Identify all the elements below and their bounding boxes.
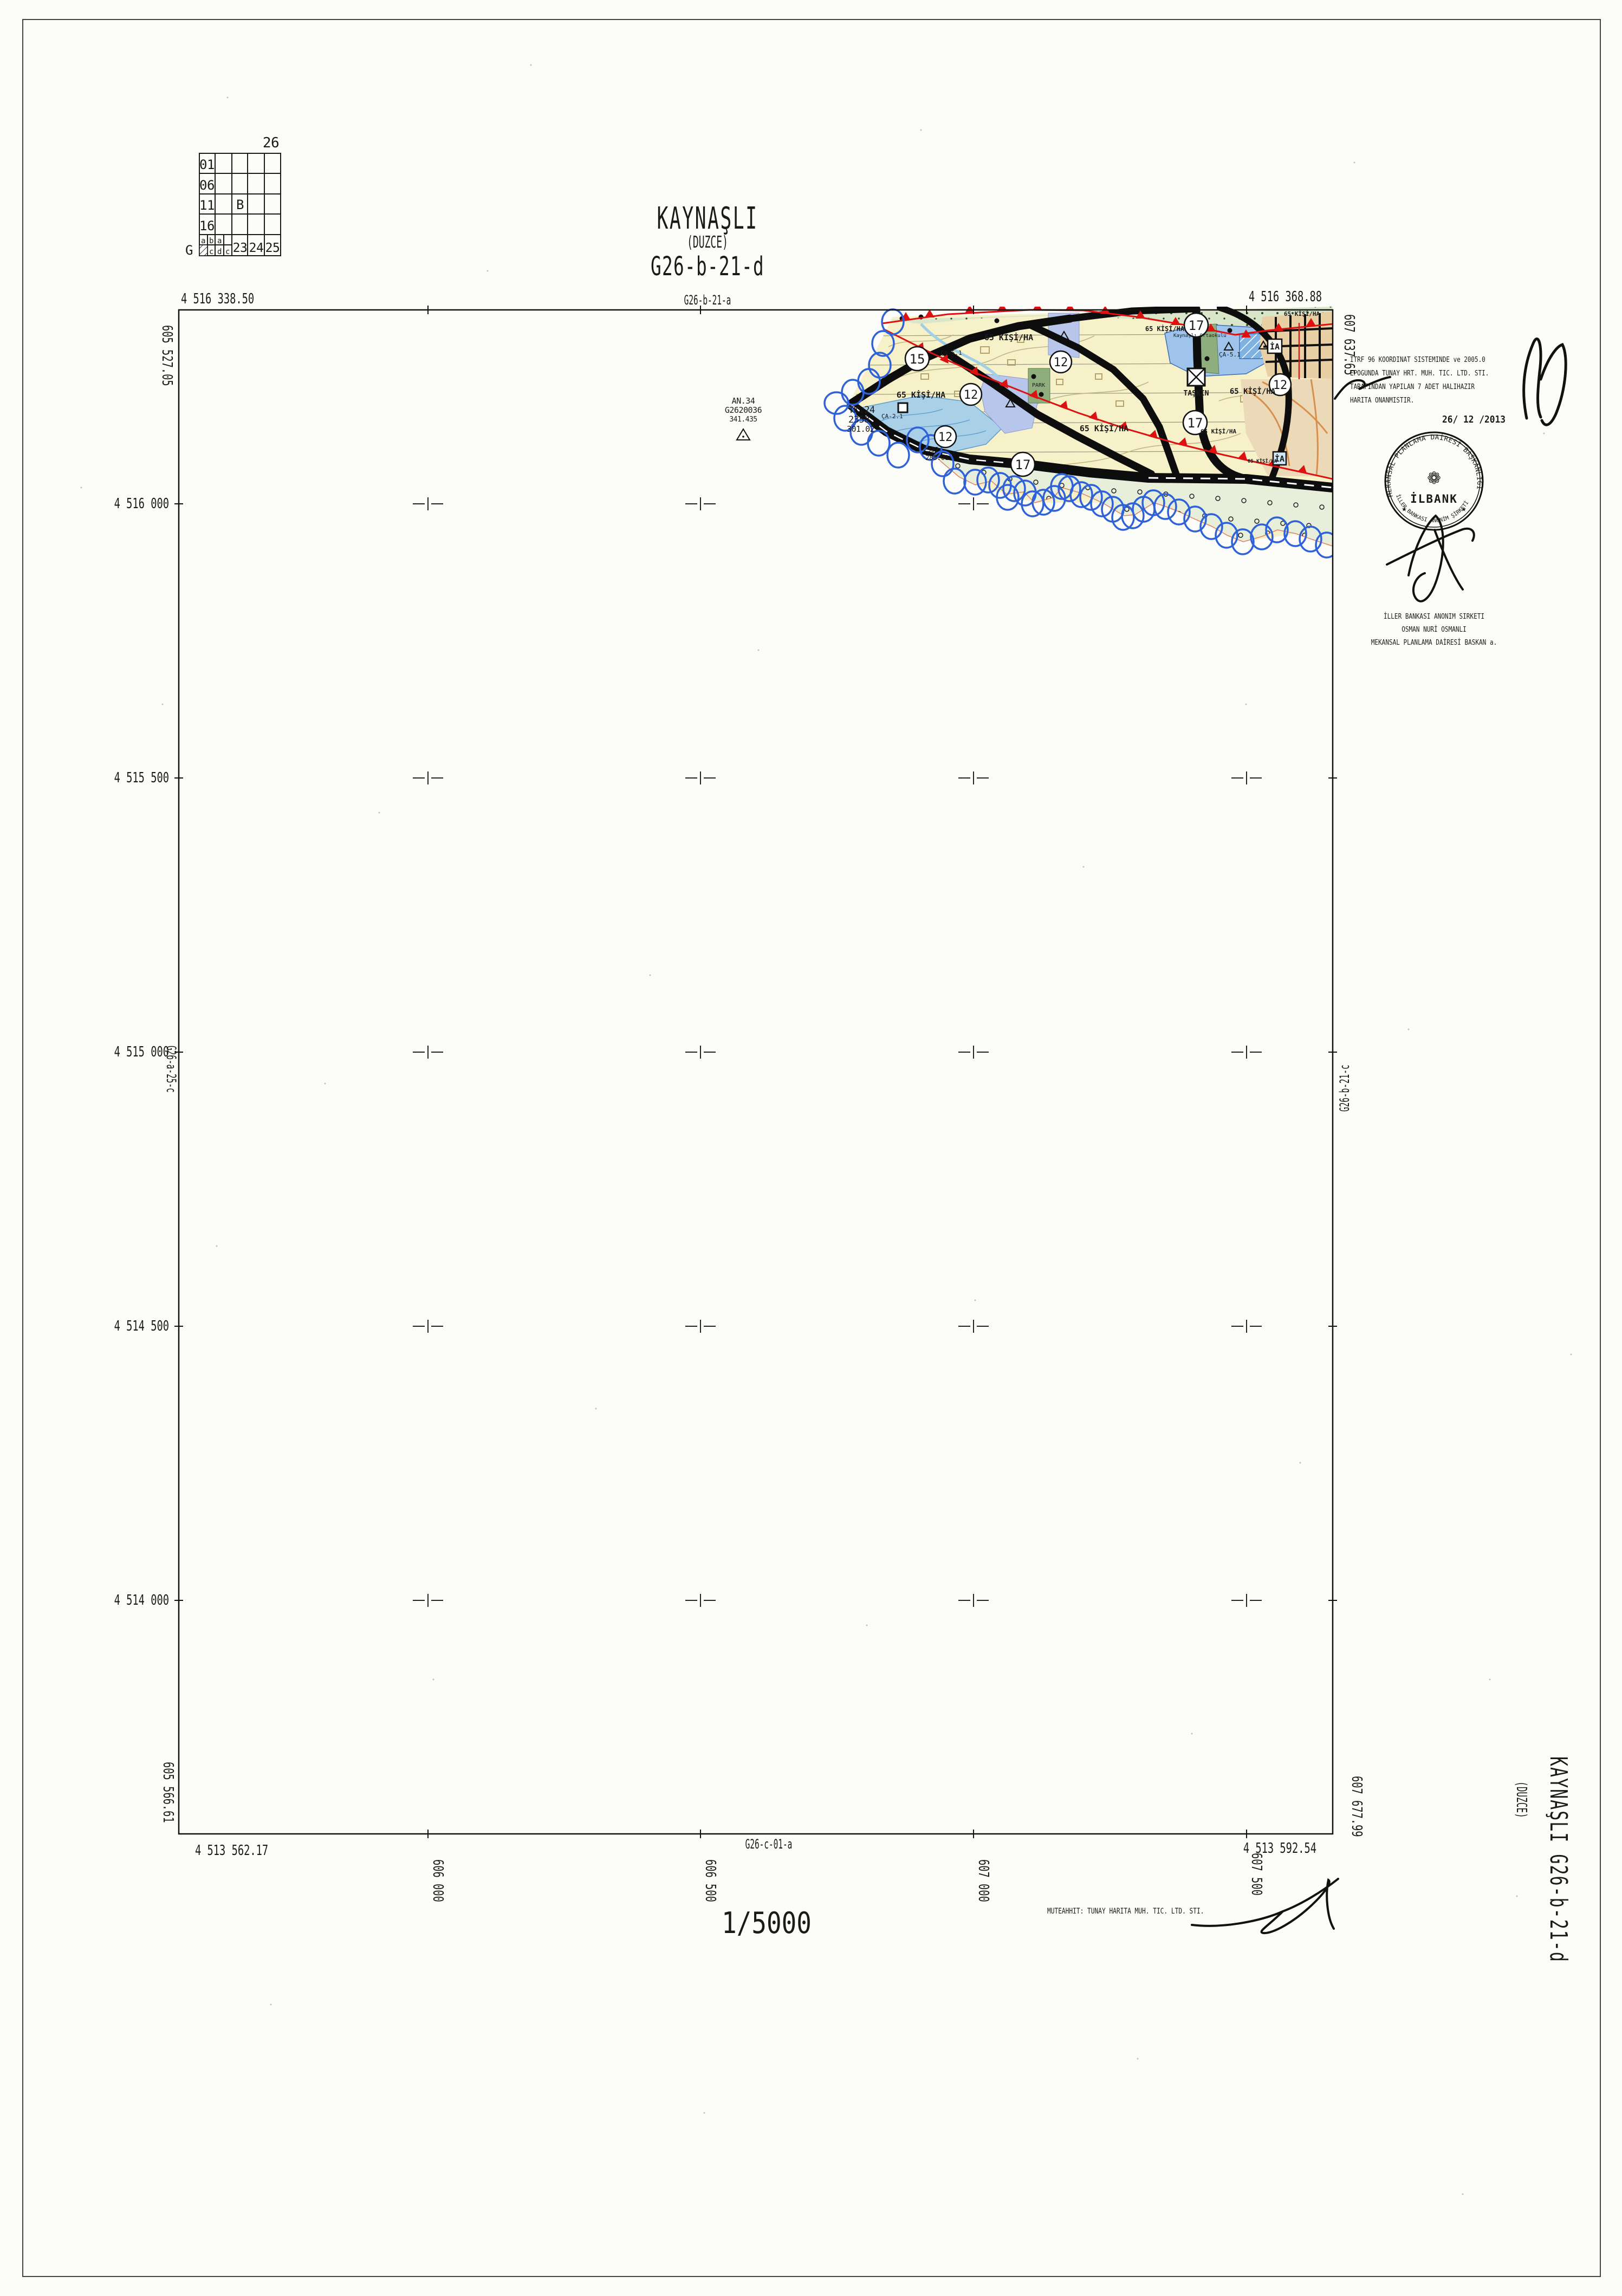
- school-label: Kaynaşlı Ortaokulu: [1173, 333, 1227, 339]
- svg-text:288.01: 288.01: [925, 454, 949, 462]
- grid-crosses: [413, 497, 1262, 1607]
- svg-text:ÇA-5.1: ÇA-5.1: [1219, 351, 1241, 358]
- road-badge-12c: 12: [1050, 351, 1072, 373]
- side-title: KAYNAŞLI G26-b-21-d (DUZCE): [1513, 1756, 1573, 1963]
- stamp-star-right-icon: ★: [1461, 503, 1467, 514]
- northing-labels: 4 516 000 4 515 500 4 515 000 4 514 500 …: [114, 496, 169, 1609]
- neighbor-sheet-right: G26-b-21-c: [1337, 1065, 1352, 1112]
- svg-text:607 500: 607 500: [1248, 1853, 1264, 1896]
- svg-text:İLLER BANKASI ANONIM SIRKETI: İLLER BANKASI ANONIM SIRKETI: [1384, 612, 1484, 620]
- road-badge-12b: 12: [935, 426, 956, 447]
- svg-text:301.02: 301.02: [847, 424, 874, 434]
- index-row-11: 11: [199, 198, 215, 213]
- corner-bl-northing: 4 513 562.17: [195, 1843, 268, 1859]
- approval-note: ITRF 96 KOORDINAT SISTEMINDE ve 2005.0 E…: [1350, 355, 1506, 425]
- frame-ticks: [174, 306, 1337, 1838]
- index-sub-c1: c: [209, 248, 213, 256]
- corner-br-easting: 607 677.99: [1348, 1776, 1365, 1837]
- svg-text:2352: 2352: [923, 446, 939, 453]
- index-center-b: B: [236, 197, 244, 212]
- svg-text:17: 17: [1189, 318, 1204, 333]
- taskin-symbol: TAŞKIN: [1184, 368, 1209, 398]
- svg-text:4 514 500: 4 514 500: [114, 1318, 169, 1334]
- svg-text:AN.34: AN.34: [732, 396, 755, 406]
- index-zone-label: 26: [263, 135, 279, 151]
- corner-coordinates: 4 516 338.50 605 527.05 4 516 368.88 607…: [159, 289, 1365, 1859]
- stamp-flower-icon: ❁: [1428, 464, 1441, 489]
- svg-text:4 514 000: 4 514 000: [114, 1592, 169, 1609]
- officer-block: İLLER BANKASI ANONIM SIRKETI OSMAN NURİ …: [1371, 612, 1497, 646]
- corner-tr-easting: 607 637.65: [1341, 314, 1357, 375]
- svg-text:65 KİŞİ/HA: 65 KİŞİ/HA: [1284, 310, 1320, 317]
- svg-text:OSMAN NURİ OSMANLI: OSMAN NURİ OSMANLI: [1402, 625, 1467, 633]
- index-sub-a1: a: [201, 237, 205, 245]
- svg-text:65 KİŞİ/HA: 65 KİŞİ/HA: [1248, 458, 1277, 464]
- page-title: KAYNAŞLI: [657, 200, 758, 236]
- svg-text:65 KİŞİ/HA: 65 KİŞİ/HA: [897, 390, 945, 400]
- index-sub-a2: a: [217, 237, 222, 245]
- approver-signature: [1524, 339, 1566, 425]
- svg-text:341.435: 341.435: [729, 416, 757, 424]
- map-neatline: [179, 310, 1333, 1834]
- contractor-signature: [1192, 1879, 1338, 1933]
- scale-label: 1/5000: [722, 1905, 812, 1940]
- neighbor-sheet-bottom: G26-c-01-a: [745, 1837, 793, 1852]
- side-title-main: KAYNAŞLI G26-b-21-d: [1545, 1756, 1572, 1963]
- svg-text:65 KİŞİ/HA: 65 KİŞİ/HA: [1230, 387, 1276, 396]
- svg-text:EPOGUNDA TUNAY HRT. MUH. TIC.: EPOGUNDA TUNAY HRT. MUH. TIC. LTD. STI.: [1350, 369, 1489, 377]
- svg-text:12: 12: [938, 431, 953, 444]
- taskin-label: TAŞKIN: [1184, 390, 1209, 398]
- index-col-23: 23: [233, 241, 248, 255]
- index-row-01: 01: [199, 157, 215, 172]
- corner-tr-northing: 4 516 368.88: [1249, 289, 1322, 305]
- page-subtitle: (DUZCE): [687, 232, 728, 251]
- svg-text:TK.24: TK.24: [848, 405, 875, 416]
- svg-text:65 KİŞİ/HA: 65 KİŞİ/HA: [1201, 427, 1237, 435]
- neighbor-sheet-top: G26-b-21-a: [684, 293, 731, 308]
- svg-text:606 000: 606 000: [430, 1859, 446, 1902]
- svg-text:65 KİŞİ/HA: 65 KİŞİ/HA: [984, 332, 1033, 342]
- svg-text:4 515 500: 4 515 500: [114, 770, 169, 786]
- benchmark-an34: AN.34 G2620036 341.435: [725, 396, 762, 440]
- index-sub-c2: c: [225, 248, 230, 256]
- svg-text:ÇA-5.1: ÇA-5.1: [940, 349, 962, 356]
- svg-text:17: 17: [1015, 457, 1031, 472]
- side-title-sub: (DUZCE): [1513, 1781, 1529, 1818]
- svg-text:15: 15: [910, 352, 925, 367]
- stamp-center: İLBANK: [1410, 492, 1458, 505]
- svg-text:İA: İA: [1270, 341, 1280, 352]
- index-sub-d: d: [217, 248, 222, 256]
- corner-tl-northing: 4 516 338.50: [181, 291, 254, 307]
- svg-text:65 KİŞİ/HA: 65 KİŞİ/HA: [1080, 423, 1128, 433]
- index-col-24: 24: [249, 241, 264, 255]
- sheet-number: G26-b-21-d: [651, 251, 764, 282]
- svg-text:4 516 000: 4 516 000: [114, 496, 169, 512]
- index-corner-g: G: [185, 243, 193, 258]
- svg-text:G2620036: G2620036: [725, 405, 762, 415]
- svg-text:65 KİŞİ/HA: 65 KİŞİ/HA: [1145, 325, 1185, 333]
- index-row-16: 16: [199, 218, 215, 234]
- ilbank-stamp: MEKANSAL PLANLAMA DAİRESİ BAŞKANLIĞI İLL…: [1384, 432, 1484, 530]
- map-sheet: 26 01 06 11 16 B a b a c d c 23 24 25 G …: [0, 0, 1622, 2296]
- svg-text:MEKANSAL PLANLAMA DAİRESİ BASK: MEKANSAL PLANLAMA DAİRESİ BASKAN a.: [1371, 638, 1497, 646]
- corner-tl-easting: 605 527.05: [159, 325, 175, 386]
- road-badge-12a: 12: [960, 384, 982, 405]
- road-badge-15: 15: [905, 347, 929, 371]
- svg-text:606 500: 606 500: [702, 1859, 718, 1902]
- zoning-plan-area: 15 12 12 12 12 17 17 17 TAŞK: [825, 302, 1338, 557]
- svg-text:HARITA ONANMISTIR.: HARITA ONANMISTIR.: [1350, 396, 1414, 404]
- contractor-note: MUTEAHHIT: TUNAY HARITA MUH. TIC. LTD. S…: [1047, 1906, 1204, 1916]
- index-col-25: 25: [265, 241, 280, 255]
- index-sub-b: b: [209, 237, 213, 245]
- easting-labels: 606 000 606 500 607 000 607 500: [430, 1853, 1264, 1902]
- svg-text:ÇA-2.1: ÇA-2.1: [881, 413, 903, 420]
- officer-signature: [1387, 516, 1474, 601]
- stamp-star-left-icon: ★: [1402, 503, 1407, 514]
- svg-text:12: 12: [1054, 356, 1068, 369]
- neighbor-sheet-left: G26-a-25-c: [164, 1046, 179, 1093]
- svg-text:4 515 000: 4 515 000: [114, 1044, 169, 1060]
- park-label: PARK: [1032, 382, 1045, 388]
- svg-text:2358: 2358: [848, 414, 870, 425]
- svg-text:ITRF 96 KOORDINAT SISTEMINDE v: ITRF 96 KOORDINAT SISTEMINDE ve 2005.0: [1350, 355, 1485, 364]
- index-row-06: 06: [199, 178, 215, 193]
- title-block: KAYNAŞLI (DUZCE) G26-b-21-d G26-b-21-a: [651, 200, 764, 308]
- svg-text:12: 12: [964, 388, 978, 402]
- triangulation-icon: [737, 429, 750, 440]
- approval-date: 26/ 12 /2013: [1442, 414, 1506, 425]
- road-badge-17a: 17: [1011, 452, 1035, 476]
- flood-structure-symbol: [898, 403, 907, 412]
- svg-text:607 000: 607 000: [975, 1859, 991, 1902]
- corner-bl-easting: 605 566.61: [160, 1762, 176, 1823]
